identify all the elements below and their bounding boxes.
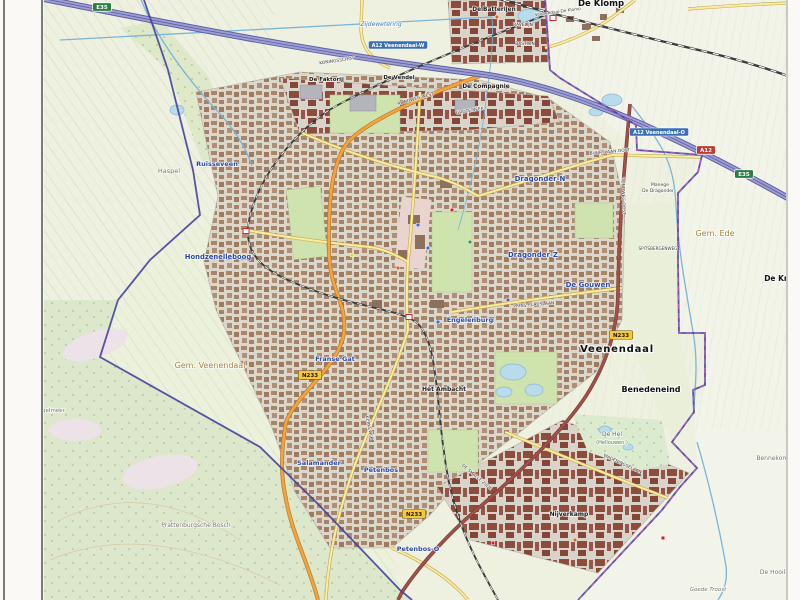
poi-marker: [426, 246, 430, 250]
railway-station-marker: [406, 315, 412, 320]
shield-red-a12: A12: [697, 146, 716, 155]
map-label-spitsbergenweg: SPITSBERGENWEG: [638, 246, 677, 251]
map-label-de-dragonder: De Dragonder: [642, 188, 674, 194]
map-label-prattenburgsche-bosch: Prattenburgsche Bosch: [161, 522, 231, 529]
map-content: A12E35E35N233N233N233 A12 Veenendaal-WA1…: [27, 0, 800, 600]
svg-text:A12 Veenendaal-O: A12 Veenendaal-O: [633, 130, 685, 136]
map-label-de-hel: De Hel: [602, 431, 622, 438]
poi-marker: [468, 240, 472, 244]
poi-marker: [396, 266, 400, 270]
park: [575, 203, 613, 238]
map-label-franse-gat: Franse Gat: [315, 355, 355, 363]
shield-green-e35: E35: [93, 3, 112, 12]
map-label-bastion: BASTION: [515, 41, 535, 47]
map-label-dragonder-n: Dragonder-N: [515, 175, 566, 183]
map-canvas: A12E35E35N233N233N233 A12 Veenendaal-WA1…: [0, 0, 800, 600]
poi-marker: [491, 541, 495, 545]
map-label-de-gouwen: De Gouwen: [566, 281, 611, 289]
shield-green-e35: E35: [735, 170, 754, 179]
map-label-petenbos-o: Petenbos-O: [397, 545, 440, 553]
exit-sign-a12-veenendaal-w: A12 Veenendaal-W: [368, 41, 427, 49]
svg-text:E35: E35: [738, 172, 750, 178]
map-label-zijdewetering: Zijdewetering: [359, 21, 402, 28]
map-label-veenendaal: Veenendaal: [580, 344, 654, 355]
poi-marker: [350, 253, 354, 257]
railway-station-marker: [243, 229, 249, 234]
poi-marker: [506, 298, 510, 302]
svg-text:A12: A12: [700, 148, 712, 154]
map-label-benedeneind: Benedeneind: [621, 385, 680, 394]
svg-text:N233: N233: [613, 333, 629, 339]
svg-text:E35: E35: [96, 5, 108, 11]
svg-text:N233: N233: [406, 512, 422, 518]
poi-marker: [436, 320, 440, 324]
margin-left: [0, 0, 41, 600]
exit-sign-a12-veenendaal-o: A12 Veenendaal-O: [629, 128, 688, 136]
map-label-de-compagnie: De Compagnie: [462, 84, 509, 90]
svg-text:N233: N233: [302, 373, 318, 379]
map-label-ruisseveen: Ruisseveen: [196, 160, 238, 168]
map-label-goede-troost: Goede Troost: [690, 587, 727, 593]
map-label-petenbos: Petenbos: [364, 466, 398, 474]
park-south: [428, 430, 478, 472]
margin-right: [787, 0, 800, 600]
sports-park: [432, 212, 472, 292]
railway-station-marker: [550, 16, 556, 21]
shield-yellow-n233: N233: [609, 331, 632, 340]
map-label-gem-ede: Gem. Ede: [695, 229, 734, 238]
map-screenshot: A12E35E35N233N233N233 A12 Veenendaal-WA1…: [0, 0, 800, 600]
map-label-de-klomp: De Klomp: [578, 0, 624, 9]
heath-patch: [49, 419, 101, 441]
svg-text:A12 Veenendaal-W: A12 Veenendaal-W: [372, 43, 425, 49]
park: [286, 186, 327, 259]
map-label-het-ambacht: Het Ambacht: [422, 386, 466, 393]
map-label-salamander: Salamander: [297, 459, 342, 467]
map-label-de-batterijen: De Batterijen: [472, 7, 515, 13]
shield-yellow-n233: N233: [402, 510, 425, 519]
map-label-ravelijn: RAVELIJN: [513, 22, 533, 28]
map-label-de-faktorij: De Faktorij: [309, 77, 343, 83]
shield-yellow-n233: N233: [298, 371, 321, 380]
poi-marker: [661, 536, 665, 540]
map-label-nijverkamp: Nijverkamp: [550, 511, 589, 518]
map-label-hondzenelleboog: Hondzenelleboog: [185, 253, 252, 261]
map-label-haspel: Haspel: [158, 167, 180, 175]
map-label-manege: Manege: [651, 182, 669, 188]
poi-marker: [573, 538, 577, 542]
poi-marker: [450, 208, 454, 212]
poi-marker: [416, 223, 420, 227]
poi-marker: [495, 15, 499, 19]
map-label-hellouwen: (Hellouwen.): [596, 440, 628, 446]
map-label-gem-veenendaal: Gem. Veenendaal: [175, 361, 246, 370]
map-label-de-vendel: De Vendel: [383, 75, 414, 81]
map-label-engelenburg: Engelenburg: [447, 316, 494, 324]
map-label-dragonder-z: Dragonder-Z: [508, 251, 558, 259]
